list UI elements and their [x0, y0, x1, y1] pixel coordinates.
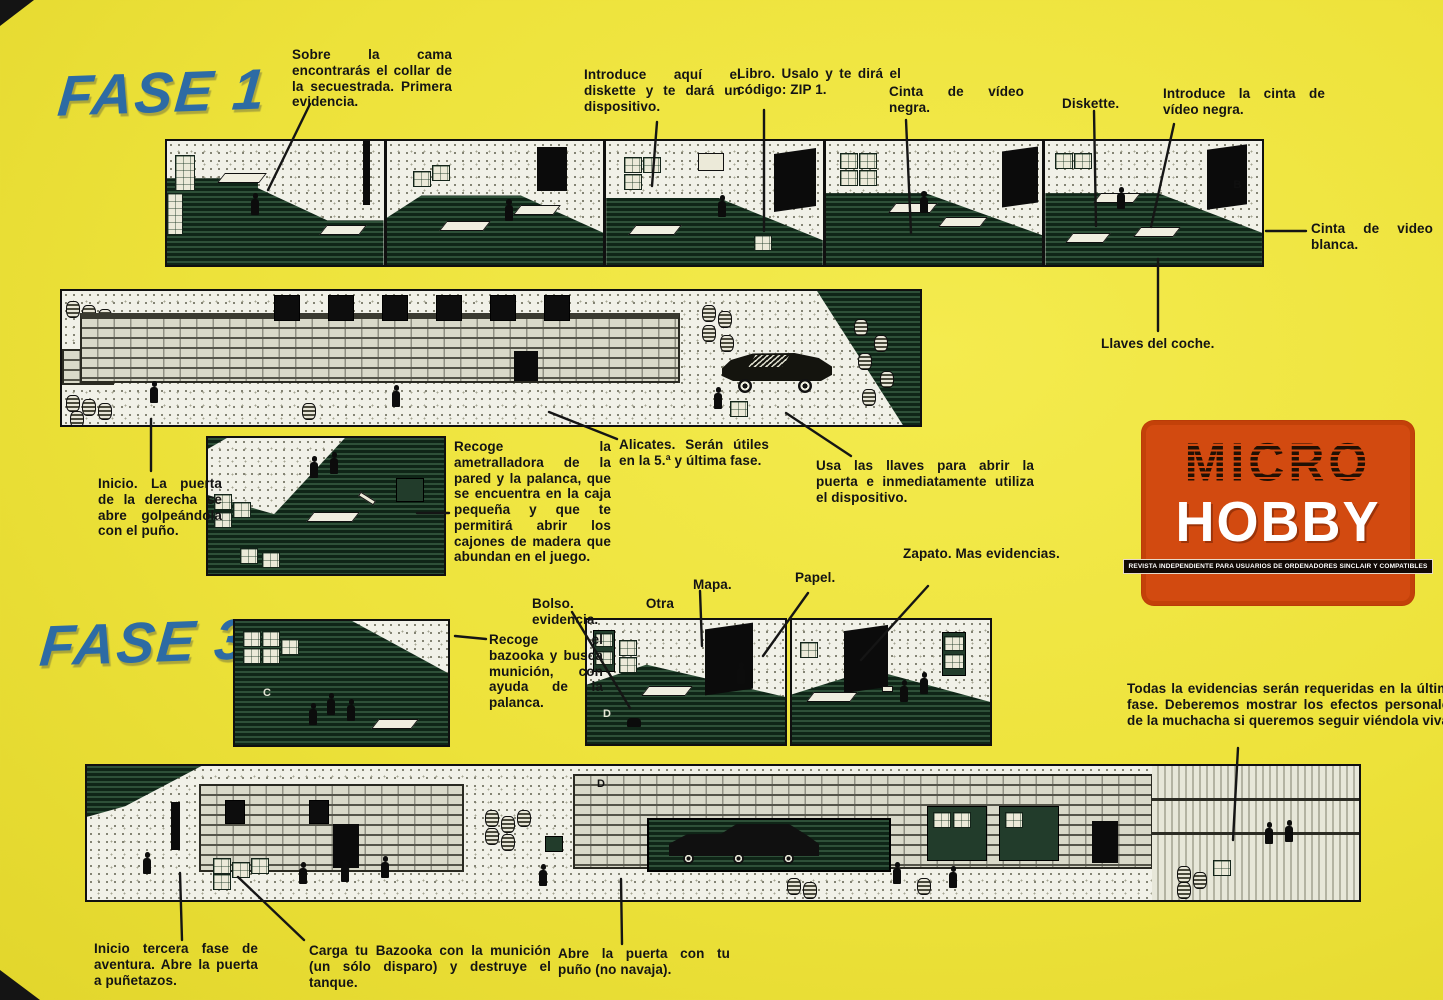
dark-board [844, 625, 888, 693]
floor [387, 141, 604, 265]
table [306, 512, 360, 522]
figure [341, 866, 349, 882]
barrel [501, 816, 515, 833]
window [225, 800, 245, 824]
barrel [66, 301, 80, 318]
crate [432, 165, 450, 181]
crate [167, 193, 183, 235]
crate [243, 631, 261, 647]
figure [718, 201, 726, 217]
car-windshield [749, 355, 790, 367]
annotation-introduce-cinta: Introduce la cinta de vídeo negra. [1163, 86, 1325, 118]
logo-micro-text: MICRO [1185, 435, 1372, 489]
crate [232, 862, 250, 878]
crate [730, 401, 748, 417]
fase3-room-b: D [585, 618, 787, 746]
annotation-papel: Papel. [795, 570, 855, 586]
crate [840, 153, 858, 169]
annotation-inicio-fase1: Inicio. La puerta de la derecha se abre … [98, 476, 222, 539]
door [537, 147, 567, 191]
figure [920, 197, 928, 213]
crate [281, 639, 299, 655]
crate [859, 170, 877, 186]
shoe [882, 686, 893, 692]
pry-bar [358, 492, 376, 506]
annotation-collar: Sobre la cama encontrarás el collar de l… [292, 47, 452, 110]
annotation-bolso: Bolso. Otra evidencia. [532, 596, 674, 628]
table [319, 225, 367, 235]
figure [347, 705, 355, 721]
leader-line [455, 636, 486, 639]
car-wheel [798, 379, 812, 393]
wall-poster [698, 153, 724, 171]
letter-glyph: B [1233, 179, 1241, 191]
crate [213, 874, 231, 890]
fase1-screenshot-strip: B [165, 139, 1264, 267]
figure [251, 199, 259, 215]
figure [330, 458, 338, 474]
logo-hobby-text: HOBBY [1175, 494, 1380, 551]
crate [1055, 153, 1073, 169]
window [382, 295, 408, 321]
window [328, 295, 354, 321]
crate [262, 631, 280, 647]
barrel [1177, 882, 1191, 899]
crate [233, 502, 251, 518]
barrel [485, 810, 499, 827]
crate [754, 235, 772, 251]
window [309, 800, 329, 824]
annotation-carga-bazooka: Carga tu Bazooka con la munición (un sól… [309, 943, 551, 990]
figure [920, 678, 928, 694]
figure [1285, 826, 1293, 842]
fase3-room-c [790, 618, 992, 746]
table [439, 221, 491, 231]
crate [624, 174, 642, 190]
warehouse-building [80, 313, 680, 383]
dark-board [774, 148, 816, 212]
fase1-warehouse-strip [60, 289, 922, 427]
crate [413, 171, 431, 187]
barrel [82, 399, 96, 416]
annotation-abre-puerta: Abre la puerta con tu puño (no navaja). [558, 946, 730, 978]
barrel [787, 878, 801, 895]
figure [1265, 828, 1273, 844]
barrel [803, 882, 817, 899]
crate [840, 170, 858, 186]
barrel [702, 325, 716, 342]
small-box [396, 478, 424, 502]
fase3-title: FASE 3 [37, 606, 251, 680]
fase1-room-3 [606, 141, 823, 265]
fase1-small-room [206, 436, 446, 576]
table [371, 719, 419, 729]
figure [327, 699, 335, 715]
crate [1005, 812, 1023, 828]
figure [392, 391, 400, 407]
door-frame [171, 802, 180, 850]
magazine-page: { "titles": { "fase1": "FASE 1", "fase3"… [0, 0, 1443, 1000]
crate [1074, 153, 1092, 169]
crate [643, 157, 661, 173]
tank-wheel [733, 853, 744, 864]
tank-wheel [783, 853, 794, 864]
door [1092, 821, 1118, 863]
barrel [880, 371, 894, 388]
shelf-line [1152, 798, 1359, 801]
dark-board [1207, 144, 1247, 210]
crate [1213, 860, 1231, 876]
annotation-alicates: Alicates. Serán útiles en la 5.ª y últim… [619, 437, 769, 469]
barrel [917, 878, 931, 895]
annotation-evidencias: Todas la evidencias serán requeridas en … [1127, 681, 1443, 728]
fase3-room-a: C [233, 619, 450, 747]
barrel [858, 353, 872, 370]
fase1-room-4 [826, 141, 1043, 265]
dark-board [1002, 146, 1038, 207]
figure [310, 462, 318, 478]
crate [624, 157, 642, 173]
annotation-llaves: Llaves del coche. [1101, 336, 1261, 352]
table [888, 203, 938, 213]
figure [737, 668, 745, 684]
figure [299, 868, 307, 884]
annotation-diskette: Diskette. [1062, 96, 1152, 112]
annotation-usa-llaves: Usa las llaves para abrir la puerta e in… [816, 458, 1034, 505]
building-a [199, 784, 464, 872]
window [436, 295, 462, 321]
barrel [302, 403, 316, 420]
barrel [1177, 866, 1191, 883]
scan-corner-top-left [0, 0, 34, 26]
barrel [862, 389, 876, 406]
fase1-room-5: B [1045, 141, 1262, 265]
car-wheel [738, 379, 752, 393]
crate [262, 648, 280, 664]
crate [944, 654, 964, 669]
barrel [70, 411, 84, 427]
barrel [854, 319, 868, 336]
small-box [545, 836, 563, 852]
shelf [175, 155, 195, 191]
table [806, 692, 858, 702]
barrel [1193, 872, 1207, 889]
table [513, 205, 561, 215]
barrel [517, 810, 531, 827]
table [628, 225, 682, 235]
logo-tagline: REVISTA INDEPENDIENTE PARA USUARIOS DE O… [1123, 559, 1432, 574]
crate [859, 153, 877, 169]
annotation-cinta-blanca: Cinta de video blanca. [1311, 221, 1433, 253]
annotation-libro: Libro. Usalo y te dirá el código: ZIP 1. [737, 66, 901, 98]
table [938, 217, 988, 227]
microhobby-logo: MICRO HOBBY REVISTA INDEPENDIENTE PARA U… [1142, 421, 1414, 605]
tank-hull [669, 824, 819, 856]
figure [505, 205, 513, 221]
tank-wheel [683, 853, 694, 864]
figure-crouching [714, 393, 722, 409]
fase1-room-1 [167, 141, 384, 265]
figure [1117, 193, 1125, 209]
door [514, 351, 538, 381]
logo-micro-wrap: MICRO [1185, 437, 1372, 493]
figure [381, 862, 389, 878]
figure [893, 868, 901, 884]
crate [262, 552, 280, 568]
letter-glyph: D [603, 708, 611, 720]
annotation-ametralladora: Recoge la ametralladora de la pared y la… [454, 439, 611, 565]
annotation-cinta-negra: Cinta de vídeo negra. [889, 84, 1024, 116]
floor [587, 620, 785, 744]
annotation-zapato: Zapato. Mas evidencias. [903, 546, 1060, 562]
crate [251, 858, 269, 874]
annotation-diskette-slot: Introduce aquí el diskette y te dará un … [584, 67, 741, 114]
barrel [98, 403, 112, 420]
crate [213, 858, 231, 874]
crate [619, 640, 637, 656]
car [722, 347, 832, 395]
crate [240, 548, 258, 564]
fase1-title: FASE 1 [55, 56, 269, 130]
annotation-inicio-fase3: Inicio tercera fase de aventura. Abre la… [94, 941, 258, 988]
barrel [874, 335, 888, 352]
crate [944, 636, 964, 651]
table [1133, 227, 1181, 237]
barrel [718, 311, 732, 328]
shelf-line [1152, 832, 1359, 835]
wall-pillar [363, 141, 370, 205]
scan-corner-bottom-left [0, 970, 40, 1000]
window [490, 295, 516, 321]
window [274, 295, 300, 321]
crate [933, 812, 951, 828]
barrel [501, 834, 515, 851]
figure [539, 870, 547, 886]
letter-glyph: C [263, 687, 271, 699]
bed [217, 173, 267, 183]
floor [167, 141, 384, 265]
crate [953, 812, 971, 828]
annotation-bazooka: Recoge el bazooka y busca munición, con … [489, 632, 603, 711]
window [544, 295, 570, 321]
figure [309, 709, 317, 725]
barrel [485, 828, 499, 845]
annotation-mapa: Mapa. [693, 577, 753, 593]
letter-glyph: D [597, 778, 605, 790]
figure [949, 872, 957, 888]
barrel [66, 395, 80, 412]
fase3-screenshot-strip: D [85, 764, 1361, 902]
figure [900, 686, 908, 702]
fase1-room-2 [387, 141, 604, 265]
crate [243, 648, 261, 664]
barrel [702, 305, 716, 322]
table [641, 686, 693, 696]
handbag [627, 718, 641, 727]
figure-running [150, 387, 158, 403]
dark-board [705, 623, 753, 696]
tank [669, 824, 819, 864]
crate [800, 642, 818, 658]
crate [619, 657, 637, 673]
figure-start [143, 858, 151, 874]
